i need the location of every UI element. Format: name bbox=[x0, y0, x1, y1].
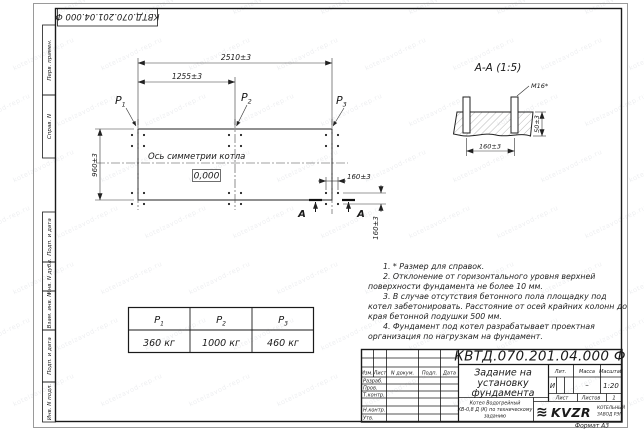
svg-text:Утв.: Утв. bbox=[363, 416, 374, 422]
load-table-header-p3: P3 bbox=[278, 315, 288, 328]
load-p3-label: P3 bbox=[336, 94, 347, 109]
dim-height: 960±3 bbox=[91, 153, 99, 177]
frame-label-podp-data-2: Подп. и дата bbox=[47, 337, 53, 375]
document-title: Задание на установку фундамента bbox=[472, 368, 535, 400]
dim-bolt-horizontal: 160±3 bbox=[347, 173, 371, 181]
load-table-value-p3: 460 кг bbox=[267, 338, 300, 349]
frame-label-inv-dubl: Инв. N дубл. bbox=[47, 258, 53, 294]
level-mark: 0,000 bbox=[194, 172, 220, 182]
svg-text:Изм.: Изм. bbox=[361, 371, 373, 377]
product-description: Котел Водогрейный КВ-0,8 Д (К) по технич… bbox=[458, 401, 533, 420]
drawing-canvas: Перв. примен. Справ. N Подп. и дата Инв.… bbox=[0, 0, 644, 430]
mass-value: – bbox=[585, 381, 589, 389]
svg-text:Пров.: Пров. bbox=[363, 386, 378, 392]
section-cut-letter-right: А bbox=[356, 209, 365, 220]
logo-subtitle-2: ЗАВОД РЭП bbox=[597, 412, 623, 418]
plan-view: 2510±3 1255±3 960±3 P1 P2 P3 Ось симметр… bbox=[91, 53, 386, 240]
load-p1-label: P1 bbox=[115, 94, 126, 109]
technical-notes: 1. * Размер для справок. 2. Отклонение о… bbox=[368, 262, 630, 342]
thread-label: М16* bbox=[531, 82, 549, 90]
frame-label-vzam-inv: Взам. инв. N bbox=[47, 293, 53, 329]
designation-rotated: КВТД.070.201.04.000 Ф bbox=[55, 11, 159, 21]
dim-bolt-vertical: 160±3 bbox=[372, 216, 380, 240]
sheets-value: 1 bbox=[612, 396, 616, 402]
note-4: 4. Фундамент под котел разрабатывает про… bbox=[368, 322, 630, 342]
svg-text:Лит.: Лит. bbox=[554, 369, 567, 375]
svg-text:Лист: Лист bbox=[373, 371, 388, 377]
title-block: КВТД.070.201.04.000 Ф Изм. Лист N докум.… bbox=[361, 349, 626, 423]
format-label: Формат А3 bbox=[575, 423, 609, 430]
load-table: P1 P2 P3 360 кг 1000 кг 460 кг bbox=[129, 308, 314, 353]
lit-value: И bbox=[550, 382, 556, 390]
section-cut-letter-left: А bbox=[297, 209, 306, 220]
svg-text:Масштаб: Масштаб bbox=[599, 369, 623, 375]
load-p2-label: P2 bbox=[241, 91, 252, 106]
svg-text:Т.контр.: Т.контр. bbox=[363, 393, 385, 399]
section-view: А-А (1:5) М16* 50±3 160±3 bbox=[454, 62, 549, 156]
svg-text:заданию: заданию bbox=[484, 415, 506, 420]
dim-overall: 2510±3 bbox=[221, 53, 251, 62]
sheet-label: Лист bbox=[555, 396, 570, 402]
scale-value: 1:20 bbox=[603, 382, 619, 390]
section-dim-spacing: 160±3 bbox=[479, 143, 501, 151]
frame-label-perv-primen: Перв. примен. bbox=[47, 39, 53, 81]
frame-label-inv-podl: Инв. N подл. bbox=[47, 384, 53, 421]
svg-text:Масса: Масса bbox=[579, 369, 595, 375]
note-2: 2. Отклонение от горизонтального уровня … bbox=[368, 272, 630, 292]
section-dim-depth: 50±3 bbox=[533, 115, 541, 133]
svg-text:КВ-0,8 Д (К) по техническому: КВ-0,8 Д (К) по техническому bbox=[458, 407, 533, 413]
frame-label-podp-data-1: Подп. и дата bbox=[47, 218, 53, 256]
logo-subtitle-1: КОТЕЛЬНЫЙ bbox=[597, 404, 626, 411]
svg-text:Разраб.: Разраб. bbox=[363, 379, 383, 385]
svg-text:Дата: Дата bbox=[442, 371, 456, 377]
sheets-label: Листов bbox=[581, 396, 601, 402]
load-table-value-p1: 360 кг bbox=[143, 338, 176, 349]
note-1: 1. * Размер для справок. bbox=[368, 262, 630, 272]
axis-label: Ось симметрии котла bbox=[148, 152, 245, 162]
revision-header-row: Изм. Лист N докум. Подп. Дата bbox=[361, 371, 456, 377]
load-table-header-p2: P2 bbox=[216, 315, 226, 328]
svg-text:Котел Водогрейный: Котел Водогрейный bbox=[470, 401, 521, 407]
svg-text:Задание на: Задание на bbox=[474, 368, 532, 379]
frame-label-sprav-n: Справ. N bbox=[47, 114, 53, 139]
svg-text:N докум.: N докум. bbox=[391, 371, 414, 377]
svg-text:фундамента: фундамента bbox=[472, 388, 535, 399]
svg-text:Н.контр.: Н.контр. bbox=[363, 408, 385, 414]
logo-text: KVZR bbox=[551, 405, 591, 420]
svg-text:Подп.: Подп. bbox=[422, 371, 437, 377]
load-table-header-p1: P1 bbox=[154, 315, 164, 328]
note-3: 3. В случае отсутствия бетонного пола пл… bbox=[368, 292, 630, 322]
company-logo: ≋ KVZR КОТЕЛЬНЫЙ ЗАВОД РЭП bbox=[536, 404, 626, 421]
dim-half: 1255±3 bbox=[172, 72, 202, 81]
logo-wave-icon: ≋ bbox=[536, 405, 548, 421]
load-table-value-p2: 1000 кг bbox=[202, 338, 241, 349]
lit-mass-scale-headers: Лит. Масса Масштаб bbox=[554, 369, 623, 375]
section-title: А-А (1:5) bbox=[474, 62, 522, 74]
role-labels: Разраб. Пров. Т.контр. Н.контр. Утв. bbox=[363, 379, 385, 422]
drawing-sheet: kotelzavod-rep.rukotelzavod-rep.rukotelz… bbox=[0, 0, 644, 430]
stamp-designation: КВТД.070.201.04.000 Ф bbox=[454, 349, 626, 365]
